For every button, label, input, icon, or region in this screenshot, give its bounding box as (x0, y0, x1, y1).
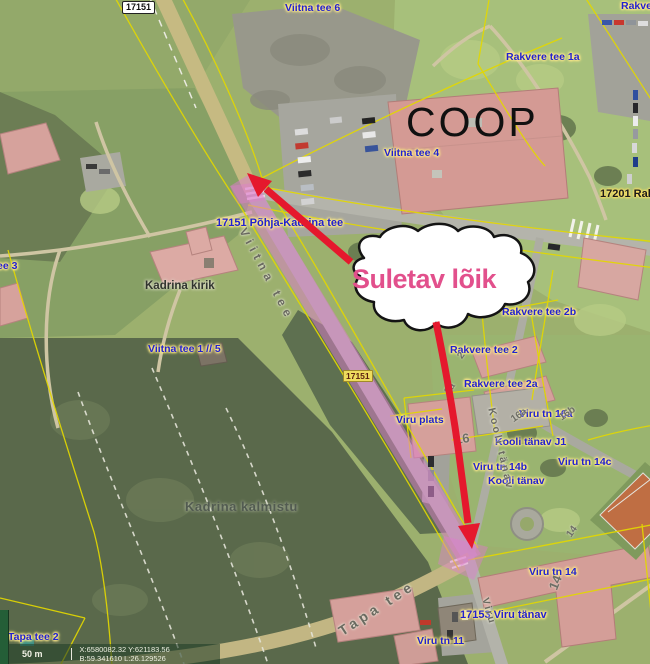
address-label-viitna-tee-1-5: Viitna tee 1 // 5 (148, 344, 221, 355)
address-label-tapa-tee-2: Tapa tee 2 (8, 632, 59, 643)
address-label-rakvere-tee-2a: Rakvere tee 2a (464, 379, 538, 390)
street-name-tapa-tee: Tapa tee (336, 578, 417, 638)
coordinate-readout: X:6580082.32 Y:621183.56 B:59.341610 L:2… (80, 645, 170, 663)
scale-value: 50 m (22, 649, 43, 659)
street-name-viru: Viru (479, 597, 496, 626)
coordinate-bl: B:59.341610 L:26.129526 (80, 654, 170, 663)
parcel-number-16a: 16a (510, 407, 529, 425)
road-label-pohja-kadrina-tee: 17151 Põhja-Kadrina tee (216, 218, 343, 229)
address-label-rakvere-partial: Rakve (621, 1, 650, 12)
place-label-kadrina-kalmistu: Kadrina kalmistu (185, 500, 298, 513)
scale-tick (71, 648, 72, 660)
store-label-coop: COOP (406, 102, 539, 143)
road-label-17153-viru-tanav: 17153 Viru tänav (460, 610, 547, 621)
map-canvas[interactable]: 17151 Viitna tee 6 Rakve Rakvere tee 1a … (0, 0, 650, 664)
coordinate-xy: X:6580082.32 Y:621183.56 (80, 645, 170, 654)
parcel-number-16: 16 (454, 431, 470, 446)
statusbar: 50 m X:6580082.32 Y:621183.56 B:59.34161… (8, 644, 220, 664)
parcel-number-14-top: 14 (565, 525, 580, 540)
address-label-viitna-tee-6: Viitna tee 6 (285, 3, 340, 14)
place-label-kadrina-kirik: Kadrina kirik (145, 281, 215, 293)
address-label-viru-tn-14c: Viru tn 14c (558, 457, 612, 468)
address-label-viru-tn-11: Viru tn 11 (417, 636, 464, 647)
street-name-viitna-tee: Viitna tee (237, 226, 296, 323)
parcel-number-2a: 2a (443, 382, 458, 397)
address-label-rakvere-tee-1a: Rakvere tee 1a (506, 52, 580, 63)
closure-annotation-text: Suletav lõik (352, 264, 496, 295)
address-label-viru-plats: Viru plats (396, 415, 444, 426)
road-shield-17151-top: 17151 (122, 1, 155, 14)
address-label-rakvere-tee-2b: Rakvere tee 2b (502, 307, 576, 318)
road-label-17201-rakvere: 17201 Rakv (600, 189, 650, 200)
address-label-tee-3-partial: ee 3 (0, 261, 17, 272)
road-shield-17151-mid: 17151 (343, 370, 373, 382)
address-label-viitna-tee-4: Viitna tee 4 (384, 148, 439, 159)
label-layer: 17151 Viitna tee 6 Rakve Rakvere tee 1a … (0, 0, 650, 664)
address-label-kooli-tanav: Kooli tänav (488, 476, 545, 487)
